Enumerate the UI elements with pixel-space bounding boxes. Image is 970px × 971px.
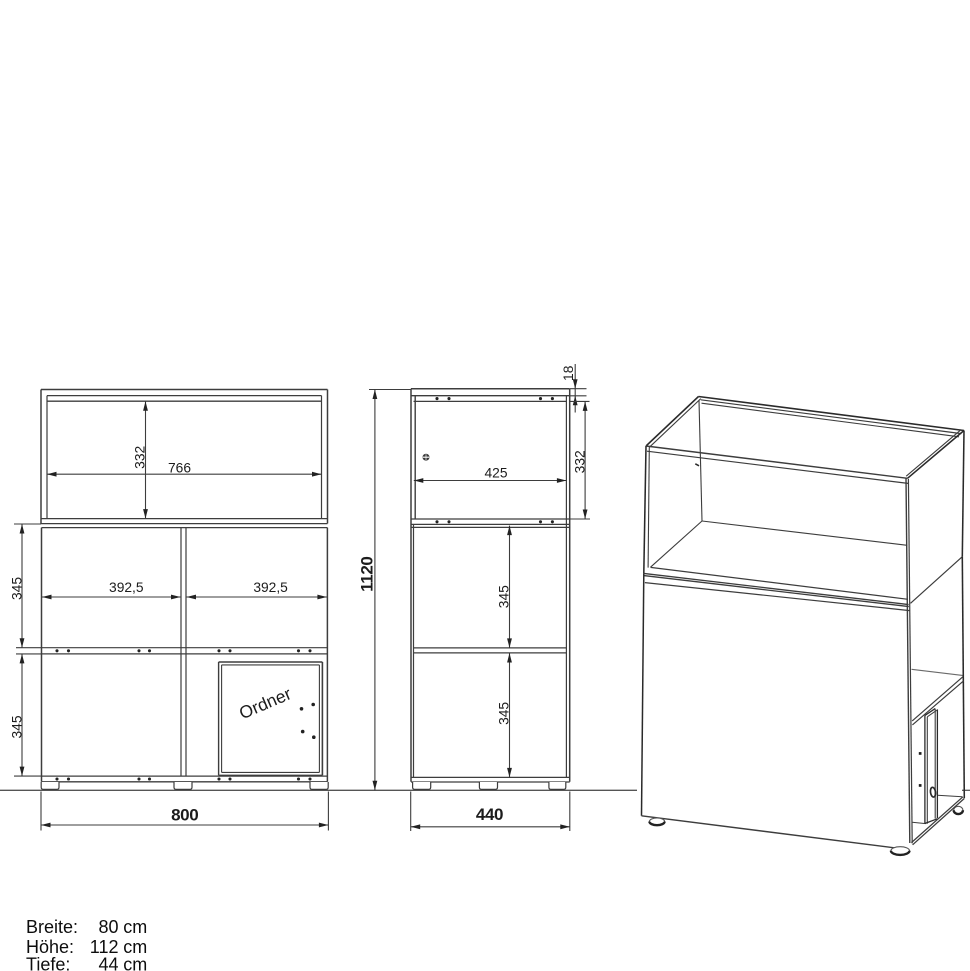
svg-text:392,5: 392,5: [253, 580, 288, 595]
svg-text:Breite:: Breite:: [26, 917, 78, 937]
svg-text:440: 440: [476, 805, 503, 824]
svg-text:345: 345: [497, 585, 512, 608]
svg-text:392,5: 392,5: [109, 580, 144, 595]
svg-text:766: 766: [168, 460, 191, 475]
svg-text:345: 345: [9, 715, 24, 738]
svg-text:80: 80: [98, 917, 118, 937]
svg-text:1120: 1120: [357, 557, 376, 592]
svg-text:44: 44: [98, 955, 118, 971]
svg-text:332: 332: [132, 446, 147, 469]
svg-text:cm: cm: [123, 955, 147, 971]
svg-text:345: 345: [9, 577, 24, 600]
svg-text:425: 425: [484, 466, 507, 481]
svg-text:Tiefe:: Tiefe:: [26, 955, 70, 971]
svg-text:332: 332: [573, 450, 588, 473]
svg-text:345: 345: [497, 702, 512, 725]
svg-text:cm: cm: [123, 917, 147, 937]
svg-text:800: 800: [171, 805, 198, 824]
svg-text:18: 18: [561, 365, 576, 381]
